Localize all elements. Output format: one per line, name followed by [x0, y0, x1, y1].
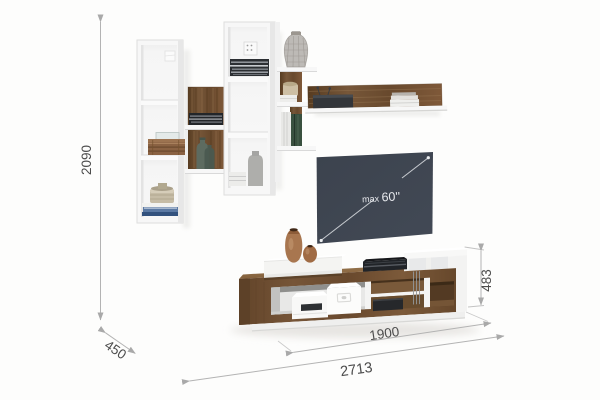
svg-text:2090: 2090: [79, 145, 94, 175]
svg-text:483: 483: [479, 269, 494, 292]
